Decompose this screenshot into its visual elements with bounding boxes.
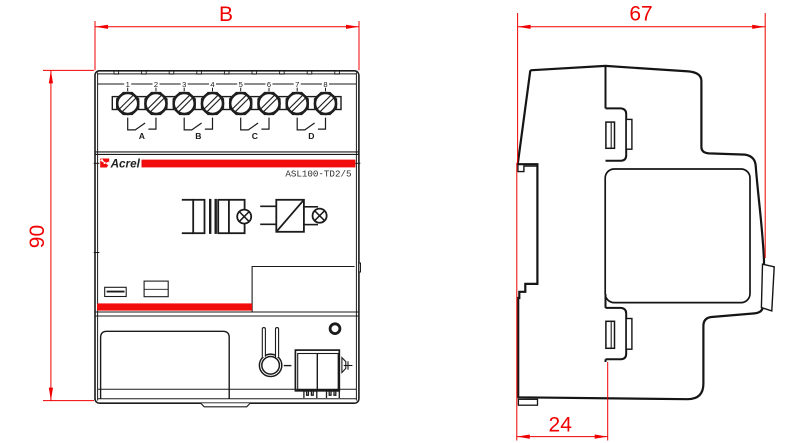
svg-text:2: 2 [154, 80, 158, 89]
svg-text:D: D [308, 131, 314, 141]
svg-text:90: 90 [26, 225, 49, 248]
svg-text:24: 24 [549, 414, 573, 437]
svg-text:B: B [195, 131, 201, 141]
svg-text:6: 6 [267, 80, 271, 89]
svg-text:Acrel: Acrel [110, 157, 141, 170]
svg-text:8: 8 [323, 80, 327, 89]
svg-text:3: 3 [182, 80, 186, 89]
svg-text:C: C [252, 131, 258, 141]
svg-text:4: 4 [210, 80, 214, 89]
svg-text:A: A [139, 131, 145, 141]
svg-text:1: 1 [126, 80, 130, 89]
svg-text:5: 5 [239, 80, 243, 89]
svg-text:B: B [219, 3, 233, 26]
svg-text:67: 67 [629, 3, 652, 26]
svg-text:7: 7 [295, 80, 299, 89]
svg-text:ASL100-TD2/5: ASL100-TD2/5 [285, 168, 351, 179]
